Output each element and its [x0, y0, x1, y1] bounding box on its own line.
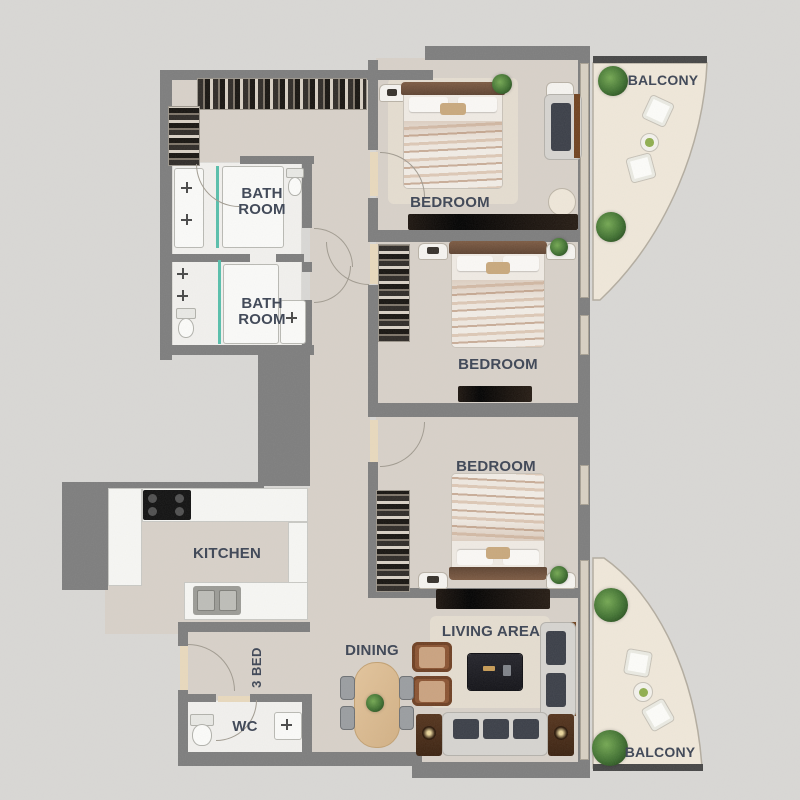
- dining-chair: [399, 676, 414, 700]
- window: [580, 560, 589, 760]
- wall: [62, 482, 108, 590]
- toilet: [190, 714, 214, 746]
- faucet-icon: [281, 719, 292, 730]
- wall: [276, 254, 304, 262]
- plant-icon: [596, 212, 626, 242]
- faucet-icon: [177, 290, 188, 301]
- wall: [368, 285, 378, 403]
- room-label-bedroom-2: BEDROOM: [448, 357, 548, 373]
- room-label-bathroom-1: BATH ROOM: [222, 186, 302, 218]
- balcony-chair: [623, 648, 653, 678]
- side-table: [548, 188, 576, 216]
- room-label-bedroom-1: BEDROOM: [400, 195, 500, 211]
- faucet-icon: [177, 268, 188, 279]
- room-label-balcony-top: BALCONY: [623, 73, 703, 88]
- balcony-table: [633, 682, 653, 702]
- wall: [172, 254, 250, 262]
- shower-glass: [218, 260, 221, 344]
- wall: [178, 622, 188, 646]
- plant-icon: [550, 238, 568, 256]
- service-shaft: [258, 346, 310, 486]
- door-threshold: [370, 420, 378, 462]
- bed-3: [452, 474, 544, 578]
- faucet-icon: [181, 214, 192, 225]
- wardrobe-bedroom2: [378, 244, 410, 342]
- dining-chair: [399, 706, 414, 730]
- wall: [178, 694, 216, 702]
- balcony-table: [640, 133, 659, 152]
- dining-chair: [340, 706, 355, 730]
- coffee-table: [468, 654, 522, 690]
- unit-type-text: 3 BED: [248, 647, 263, 688]
- room-label-balcony-bottom: BALCONY: [620, 745, 700, 760]
- wardrobe-foyer: [197, 78, 367, 110]
- plant-icon: [594, 588, 628, 622]
- room-label-wc: WC: [215, 719, 275, 735]
- nightstand: [418, 243, 448, 260]
- floor-plan: BATH ROOM BATH ROOM BEDROOM BEDROOM BEDR…: [0, 0, 800, 800]
- room-label-kitchen: KITCHEN: [177, 546, 277, 562]
- door-threshold: [370, 152, 378, 196]
- wardrobe-bedroom3: [376, 490, 410, 592]
- wall-south: [178, 752, 422, 766]
- faucet-icon: [181, 182, 192, 193]
- living-tv: [436, 589, 550, 609]
- wall: [302, 262, 312, 272]
- window: [580, 315, 589, 355]
- room-label-living-area: LIVING AREA: [431, 624, 551, 640]
- bed-2: [452, 243, 544, 347]
- dresser-tv-unit: [458, 386, 532, 402]
- dining-chair: [340, 676, 355, 700]
- wall-bedroom2-3: [368, 403, 590, 417]
- kitchen-counter-right: [288, 522, 308, 584]
- wall: [368, 198, 378, 230]
- speaker: [548, 714, 574, 756]
- unit-type-label: 3 BED: [234, 638, 278, 696]
- window: [580, 465, 589, 505]
- bench-frame: [574, 94, 580, 158]
- cooktop: [143, 490, 191, 520]
- plant-icon: [492, 74, 512, 94]
- bed-1: [404, 84, 502, 188]
- room-label-bathroom-2: BATH ROOM: [222, 296, 302, 328]
- kitchen-counter-left: [108, 488, 142, 586]
- speaker: [416, 714, 442, 756]
- sofa-bottom: [442, 712, 548, 756]
- wall: [182, 622, 310, 632]
- room-label-dining: DINING: [322, 643, 422, 659]
- plant-icon: [550, 566, 568, 584]
- kitchen-sink: [193, 586, 241, 615]
- plant-icon: [366, 694, 384, 712]
- wall: [302, 694, 312, 760]
- wall: [425, 46, 590, 60]
- wardrobe-foyer-side: [168, 106, 200, 166]
- room-label-bedroom-3: BEDROOM: [446, 459, 546, 475]
- corridor-floor: [310, 104, 370, 635]
- door-threshold: [370, 244, 378, 284]
- toilet: [176, 308, 196, 338]
- wall-south: [412, 762, 590, 778]
- armchair: [412, 676, 452, 706]
- wall: [368, 60, 378, 150]
- dresser-tv-unit: [408, 214, 578, 230]
- door-threshold: [180, 646, 188, 690]
- nightstand: [418, 572, 448, 589]
